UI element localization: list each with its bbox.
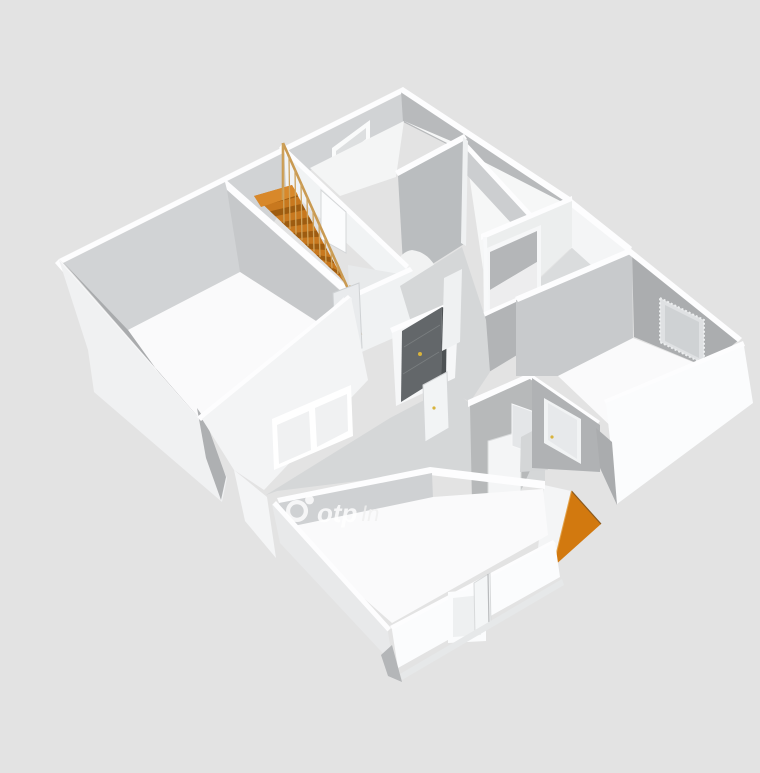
- svg-text:In: In: [361, 501, 379, 526]
- svg-text:otp: otp: [317, 498, 358, 528]
